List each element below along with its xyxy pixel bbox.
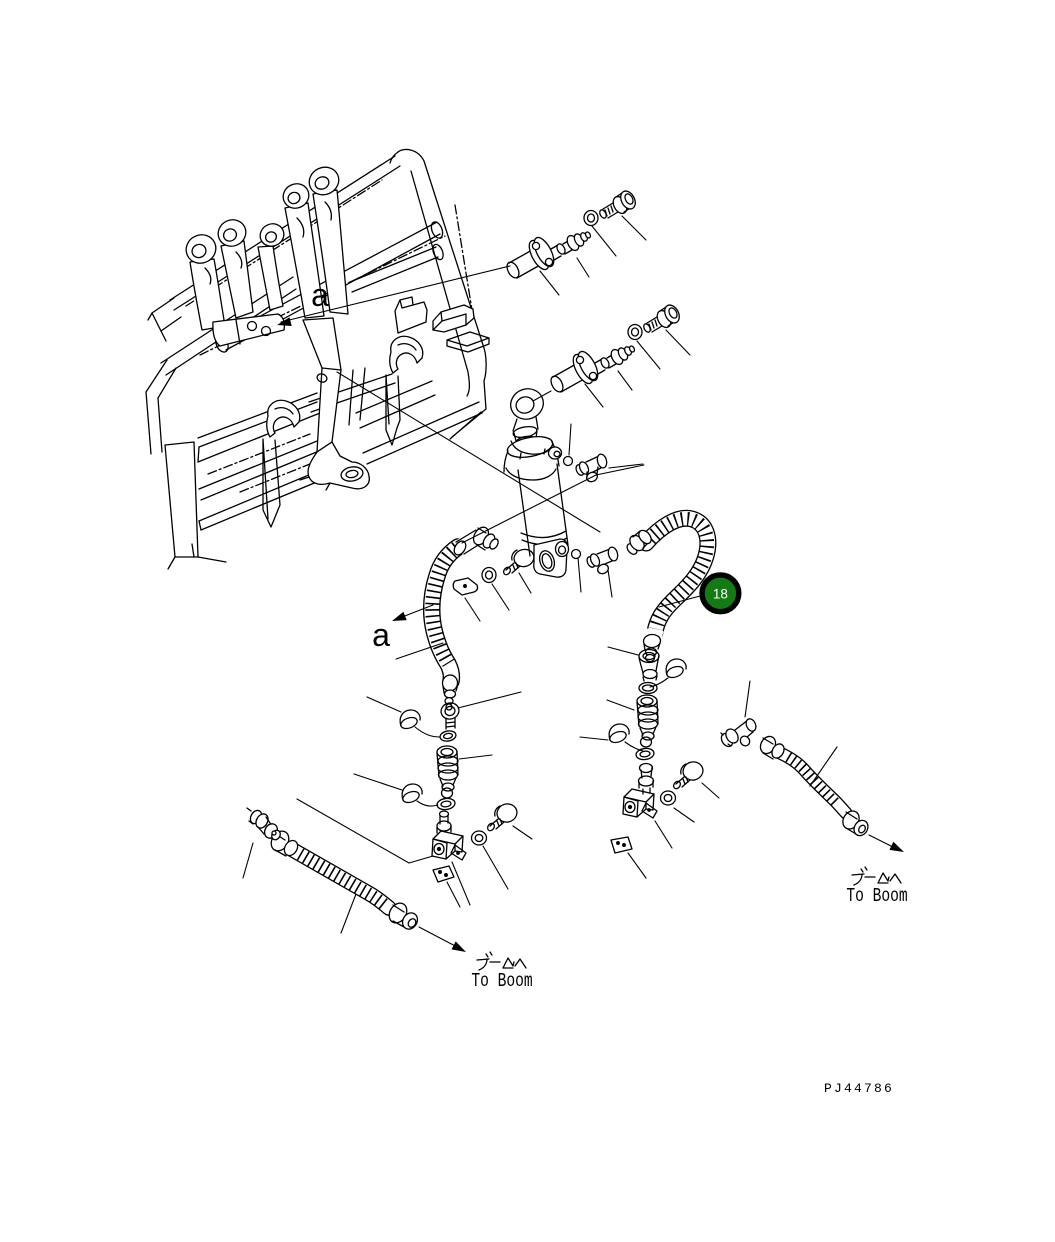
svg-text:PJ44786: PJ44786 xyxy=(824,1081,894,1096)
svg-text:18: 18 xyxy=(713,587,728,602)
svg-text:To Boom: To Boom xyxy=(471,971,532,992)
svg-text:a: a xyxy=(311,277,329,313)
svg-text:a: a xyxy=(372,617,390,653)
svg-text:To Boom: To Boom xyxy=(846,886,907,907)
